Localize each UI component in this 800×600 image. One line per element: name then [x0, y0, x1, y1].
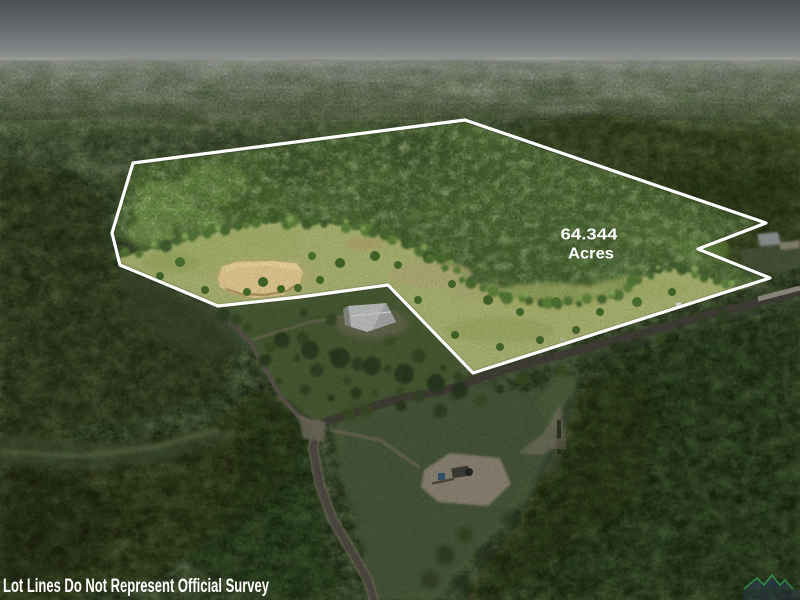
- svg-text:Acres: Acres: [568, 246, 614, 263]
- svg-text:64.344: 64.344: [561, 227, 618, 244]
- svg-text:Lot Lines Do Not Represent Off: Lot Lines Do Not Represent Official Surv…: [3, 576, 269, 597]
